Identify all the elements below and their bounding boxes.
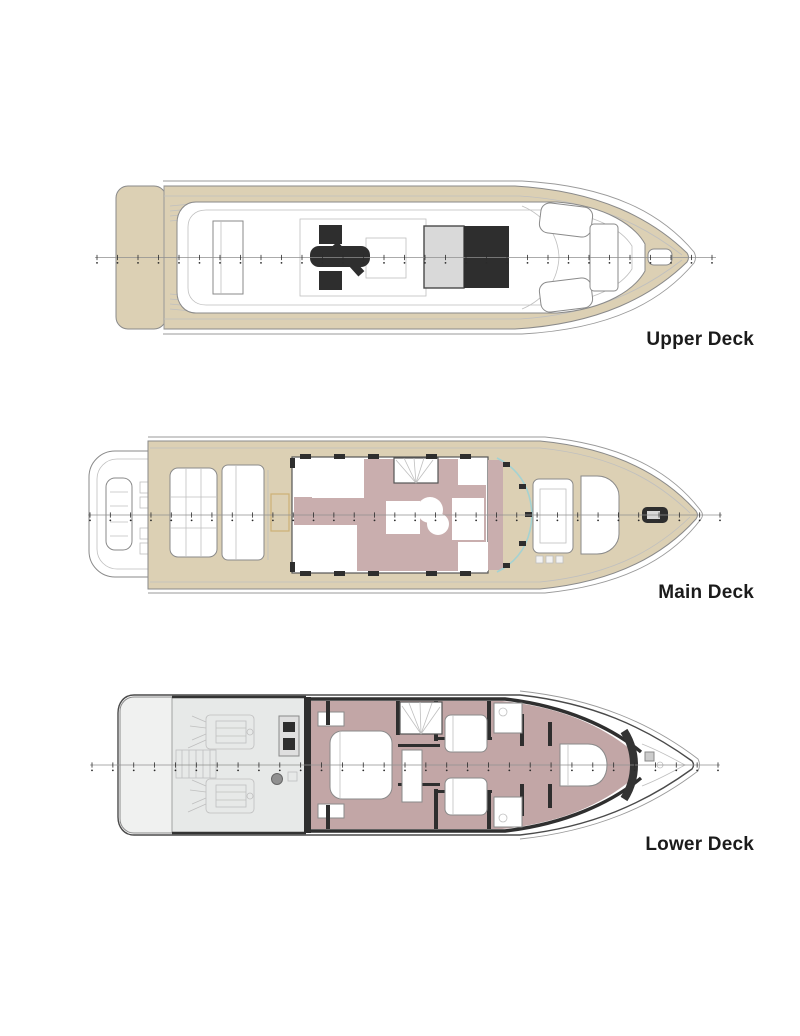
- lower-panel-detail-2: [283, 738, 295, 750]
- lower-bathroom-port: [494, 703, 522, 733]
- upper-deck-label: Upper Deck: [646, 329, 754, 351]
- main-sideboard: [312, 472, 364, 498]
- main-sofa-port: [294, 525, 357, 571]
- upper-windlass: [648, 249, 672, 265]
- main-foredeck-small-items: [536, 556, 563, 563]
- lower-deck-label: Lower Deck: [645, 834, 754, 856]
- lower-staircase: [400, 702, 442, 734]
- main-dining-chair-2: [427, 513, 449, 535]
- main-tender: [106, 478, 132, 550]
- upper-seat-port: [319, 225, 342, 244]
- lower-master-side-unit-top: [318, 712, 344, 726]
- upper-bow-pad-starboard: [538, 277, 593, 313]
- lower-master-side-unit-bottom: [318, 804, 344, 818]
- main-settee-starboard: [452, 498, 484, 540]
- lower-deck-drawing: [90, 691, 720, 839]
- lower-guest-bed-starboard: [445, 778, 487, 815]
- upper-seat-starboard: [319, 271, 342, 290]
- main-deck-drawing: [88, 437, 722, 593]
- main-cabinet-fwd-bottom: [458, 542, 488, 571]
- deck-plans-svg: [0, 0, 800, 1036]
- main-cabinet-fwd-top: [458, 459, 486, 485]
- main-foredeck-table: [533, 479, 573, 553]
- yacht-deck-plans: Upper Deck Main Deck Lower Deck: [0, 0, 800, 1036]
- lower-corridor: [402, 750, 422, 802]
- lower-guest-bed-port: [445, 715, 487, 752]
- main-deck-label: Main Deck: [658, 582, 754, 604]
- upper-sunpad-light: [424, 226, 464, 288]
- main-cockpit-sofa: [222, 465, 264, 560]
- lower-panel-detail-1: [283, 722, 295, 732]
- upper-bow-pad-port: [538, 202, 593, 238]
- main-cockpit-table: [170, 468, 217, 557]
- main-staircase: [394, 458, 438, 483]
- lower-round-hatch: [272, 774, 283, 785]
- lower-bathroom-starboard: [494, 797, 522, 827]
- upper-deck-drawing: [95, 181, 716, 334]
